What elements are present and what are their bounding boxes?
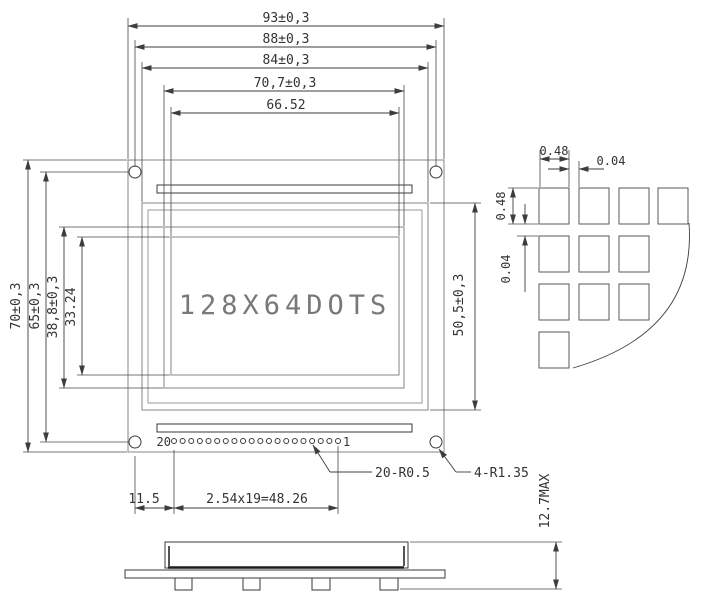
pin-pad (284, 439, 289, 444)
pixel-dot (658, 188, 688, 224)
pixel-dot (579, 188, 609, 224)
side-tab-4 (380, 578, 398, 590)
pin-pad (301, 439, 306, 444)
pin-pad (292, 439, 297, 444)
side-tab-2 (243, 578, 260, 590)
leader-hole-radius: 4-R1.35 (439, 449, 529, 481)
leader-hole-radius-label: 4-R1.35 (474, 466, 529, 481)
pin-number-last: 1 (343, 435, 350, 449)
side-view: 12.7MAX (125, 473, 562, 590)
display-label: 128X64DOTS (179, 290, 392, 321)
dim-height-33-24: 33.24 (64, 287, 79, 326)
pin-pad (215, 439, 220, 444)
dim-width-93: 93±0,3 (263, 11, 310, 26)
pin-pad (189, 439, 194, 444)
mounting-hole-bottom-left (129, 436, 141, 448)
pin-pad (232, 439, 237, 444)
dim-height-70: 70±0,3 (9, 283, 24, 330)
pin-pad (258, 439, 263, 444)
detail-dot-width-label: 0.48 (540, 144, 569, 158)
detail-boundary-arc (573, 223, 689, 368)
pin-pad (180, 439, 185, 444)
side-pcb (125, 570, 445, 578)
dim-thickness-max: 12.7MAX (538, 473, 553, 528)
leader-pin-radius-label: 20-R0.5 (375, 466, 430, 481)
pin-pad (327, 439, 332, 444)
pixel-dot (539, 332, 569, 368)
pixel-dot (539, 284, 569, 320)
mounting-hole-bottom-right (430, 436, 442, 448)
detail-view: 0.48 0.04 0.48 0.04 (494, 144, 689, 368)
pin-pad (318, 439, 323, 444)
pin-pad (206, 439, 211, 444)
pixel-dot (579, 236, 609, 272)
dimensions-bottom: 11.5 2.54x19=48.26 (128, 446, 338, 514)
side-tab-3 (312, 578, 330, 590)
pin-pad (223, 439, 228, 444)
side-tab-1 (175, 578, 192, 590)
pixel-dot (539, 188, 569, 224)
pin-pad (275, 439, 280, 444)
side-bezel (165, 542, 408, 568)
pin-pad (336, 439, 341, 444)
dim-width-66-52: 66.52 (266, 98, 305, 113)
pixel-grid (539, 188, 688, 368)
pixel-dot (539, 236, 569, 272)
pin-row (172, 439, 341, 444)
pin-pad (197, 439, 202, 444)
pin-pad (310, 439, 315, 444)
pixel-dot (579, 284, 609, 320)
pin-pad (266, 439, 271, 444)
lcd-module-drawing: 128X64DOTS 20 1 93±0,3 88±0,3 84±0,3 70,… (0, 0, 706, 606)
dim-height-38-8: 38,8±0,3 (46, 276, 61, 339)
drawing-canvas: 128X64DOTS 20 1 93±0,3 88±0,3 84±0,3 70,… (0, 0, 706, 606)
bottom-connector-strip (157, 424, 412, 432)
mounting-hole-top-left (129, 166, 141, 178)
pin-pad (249, 439, 254, 444)
dim-height-65: 65±0,3 (28, 283, 43, 330)
mounting-hole-top-right (430, 166, 442, 178)
detail-gap-v-label: 0.04 (499, 255, 513, 284)
leader-pin-radius: 20-R0.5 (313, 445, 430, 481)
top-connector-strip (157, 185, 412, 193)
detail-dot-height-label: 0.48 (494, 192, 508, 221)
pin-number-first: 20 (157, 435, 171, 449)
front-view: 128X64DOTS 20 1 (128, 160, 444, 452)
dimensions-top: 93±0,3 88±0,3 84±0,3 70,7±0,3 66.52 (128, 11, 444, 236)
pixel-dot (619, 236, 649, 272)
dim-width-70-7: 70,7±0,3 (254, 76, 317, 91)
detail-gap-h-label: 0.04 (597, 154, 626, 168)
pin-pad (172, 439, 177, 444)
dimension-right: 50,5±0,3 (430, 203, 481, 410)
dim-height-50-5: 50,5±0,3 (452, 274, 467, 337)
dimensions-left: 70±0,3 65±0,3 38,8±0,3 33.24 (9, 160, 170, 452)
pixel-dot (619, 188, 649, 224)
dim-pin-offset-11-5: 11.5 (128, 492, 159, 507)
pixel-dot (619, 284, 649, 320)
pin-pad (241, 439, 246, 444)
dim-width-88: 88±0,3 (263, 32, 310, 47)
dim-pin-pitch: 2.54x19=48.26 (206, 492, 308, 507)
dim-width-84: 84±0,3 (263, 53, 310, 68)
